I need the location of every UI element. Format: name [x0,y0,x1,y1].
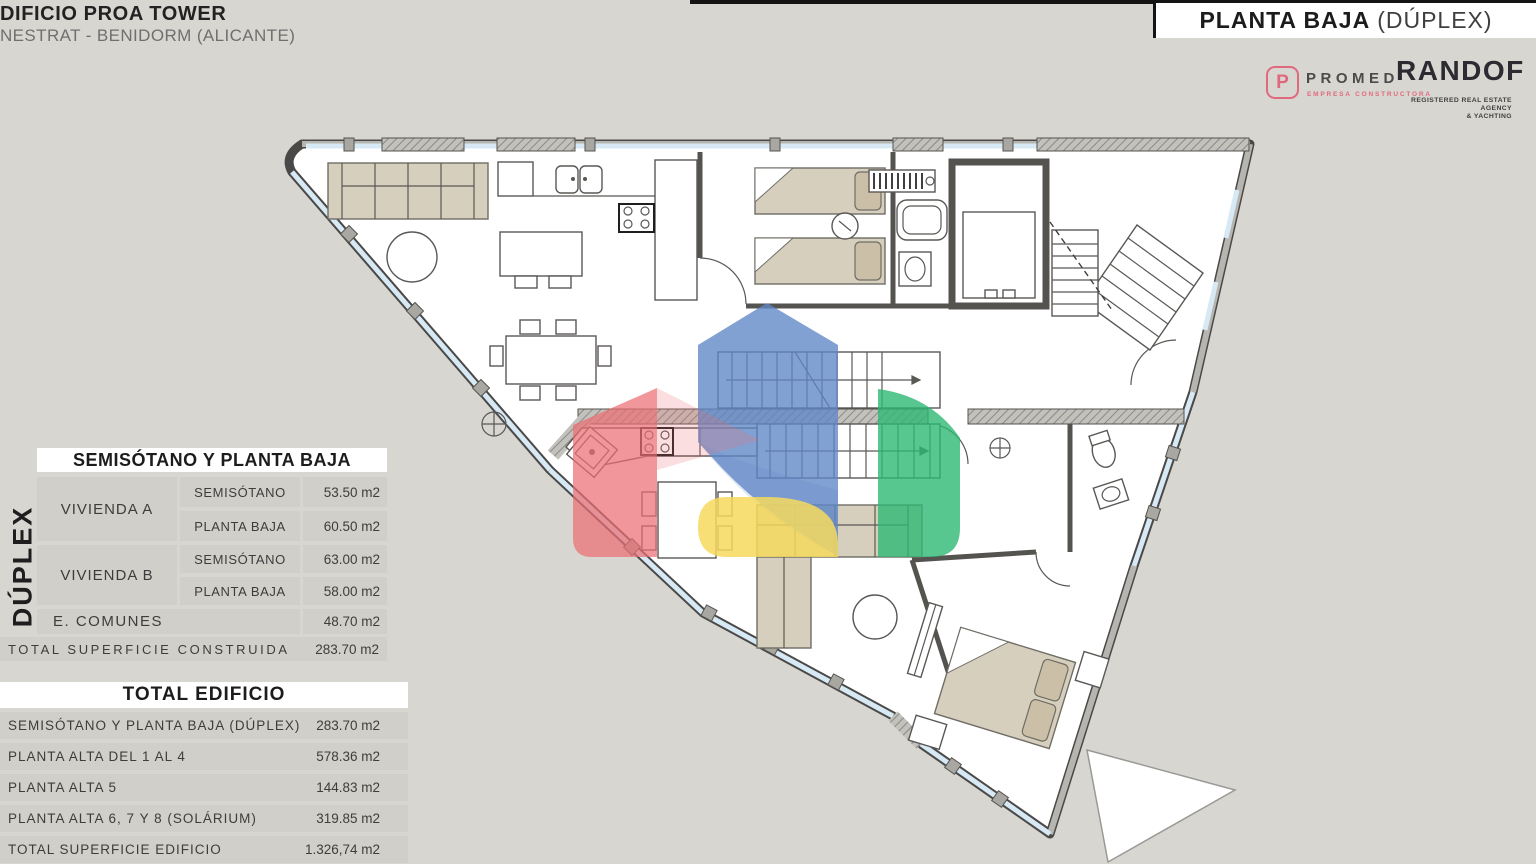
area-cell: 48.70 m2 [303,609,387,634]
area-cell: 60.50 m2 [303,511,387,541]
pouf-a [387,232,437,282]
towel-radiator [869,170,935,192]
page-title: DIFICIO PROA TOWER [0,3,226,26]
row-vivienda-a: VIVIENDA A [37,477,177,541]
promed-monogram: P [1276,72,1289,94]
floor-symbol-a [482,412,506,436]
area-cell: 63.00 m2 [303,545,387,573]
table-row: SEMISÓTANO Y PLANTA BAJA (DÚPLEX) 283.70… [0,712,408,739]
table-row: PLANTA ALTA DEL 1 AL 4 578.36 m2 [0,743,408,770]
page-subtitle: NESTRAT - BENIDORM (ALICANTE) [0,26,295,46]
randof-tagline-1: REGISTERED REAL ESTATE AGENCY [1396,97,1512,113]
stove-a [619,204,654,232]
table-edificio-title: TOTAL EDIFICIO [0,682,408,708]
table-row: TOTAL SUPERFICIE EDIFICIO 1.326,74 m2 [0,836,408,863]
floorplan-sheet: { "header": { "title": "DIFICIO PROA TOW… [0,0,1536,864]
total-construida-label: TOTAL SUPERFICIE CONSTRUIDA [0,642,315,657]
row-vivienda-b: VIVIENDA B [37,545,177,605]
row-comunes: E. COMUNES [37,609,300,634]
randof-logo-name: RANDOF [1396,55,1525,87]
table-row: PLANTA ALTA 6, 7 Y 8 (SOLÁRIUM) 319.85 m… [0,805,408,832]
total-construida-row: TOTAL SUPERFICIE CONSTRUIDA 283.70 m2 [0,637,387,661]
level-cell: PLANTA BAJA [180,511,300,541]
promed-logo-name: PROMED [1306,70,1399,87]
level-cell: SEMISÓTANO [180,545,300,573]
randof-tagline-2: & YACHTING [1396,113,1512,121]
area-cell: 58.00 m2 [303,577,387,605]
total-construida-value: 283.70 m2 [315,642,387,657]
area-cell: 53.50 m2 [303,477,387,507]
table-semisotano-title: SEMISÓTANO Y PLANTA BAJA [37,448,387,472]
level-cell: SEMISÓTANO [180,477,300,507]
floor-symbol-b [990,438,1010,458]
randof-logo-taglines: REGISTERED REAL ESTATE AGENCY & YACHTING [1396,97,1512,121]
plan-banner-subtitle: (DÚPLEX) [1377,7,1492,34]
sofa-a [328,163,488,219]
terrace-outline [1087,750,1235,862]
tall-units [655,160,697,300]
level-cell: PLANTA BAJA [180,577,300,605]
table-row: PLANTA ALTA 5 144.83 m2 [0,774,408,801]
pouf-b [853,595,897,639]
promed-logo-icon: P [1266,66,1299,99]
plan-banner-title: PLANTA BAJA [1199,7,1370,34]
plan-banner: PLANTA BAJA (DÚPLEX) [1153,3,1536,38]
